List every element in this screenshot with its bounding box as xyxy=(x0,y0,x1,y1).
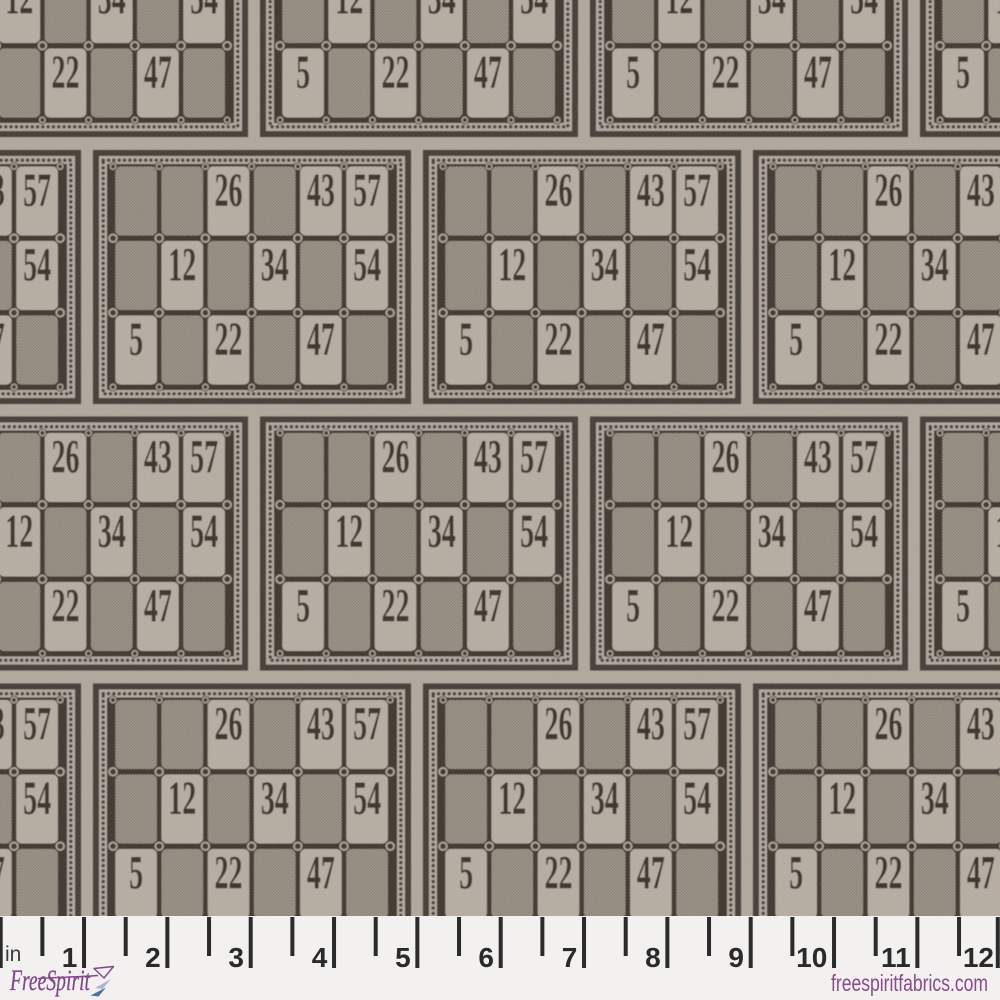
svg-text:2: 2 xyxy=(145,942,161,973)
svg-text:10: 10 xyxy=(796,942,827,973)
svg-text:FreeSpirit: FreeSpirit xyxy=(9,964,90,997)
svg-text:12: 12 xyxy=(963,942,994,973)
svg-text:5: 5 xyxy=(395,942,411,973)
svg-text:4: 4 xyxy=(312,942,328,973)
svg-text:6: 6 xyxy=(478,942,494,973)
svg-text:9: 9 xyxy=(728,942,744,973)
svg-text:3: 3 xyxy=(228,942,244,973)
svg-text:7: 7 xyxy=(562,942,578,973)
svg-text:8: 8 xyxy=(645,942,661,973)
svg-text:freespiritfabrics.com: freespiritfabrics.com xyxy=(831,970,988,996)
svg-text:11: 11 xyxy=(881,942,911,973)
svg-text:in: in xyxy=(5,943,21,966)
